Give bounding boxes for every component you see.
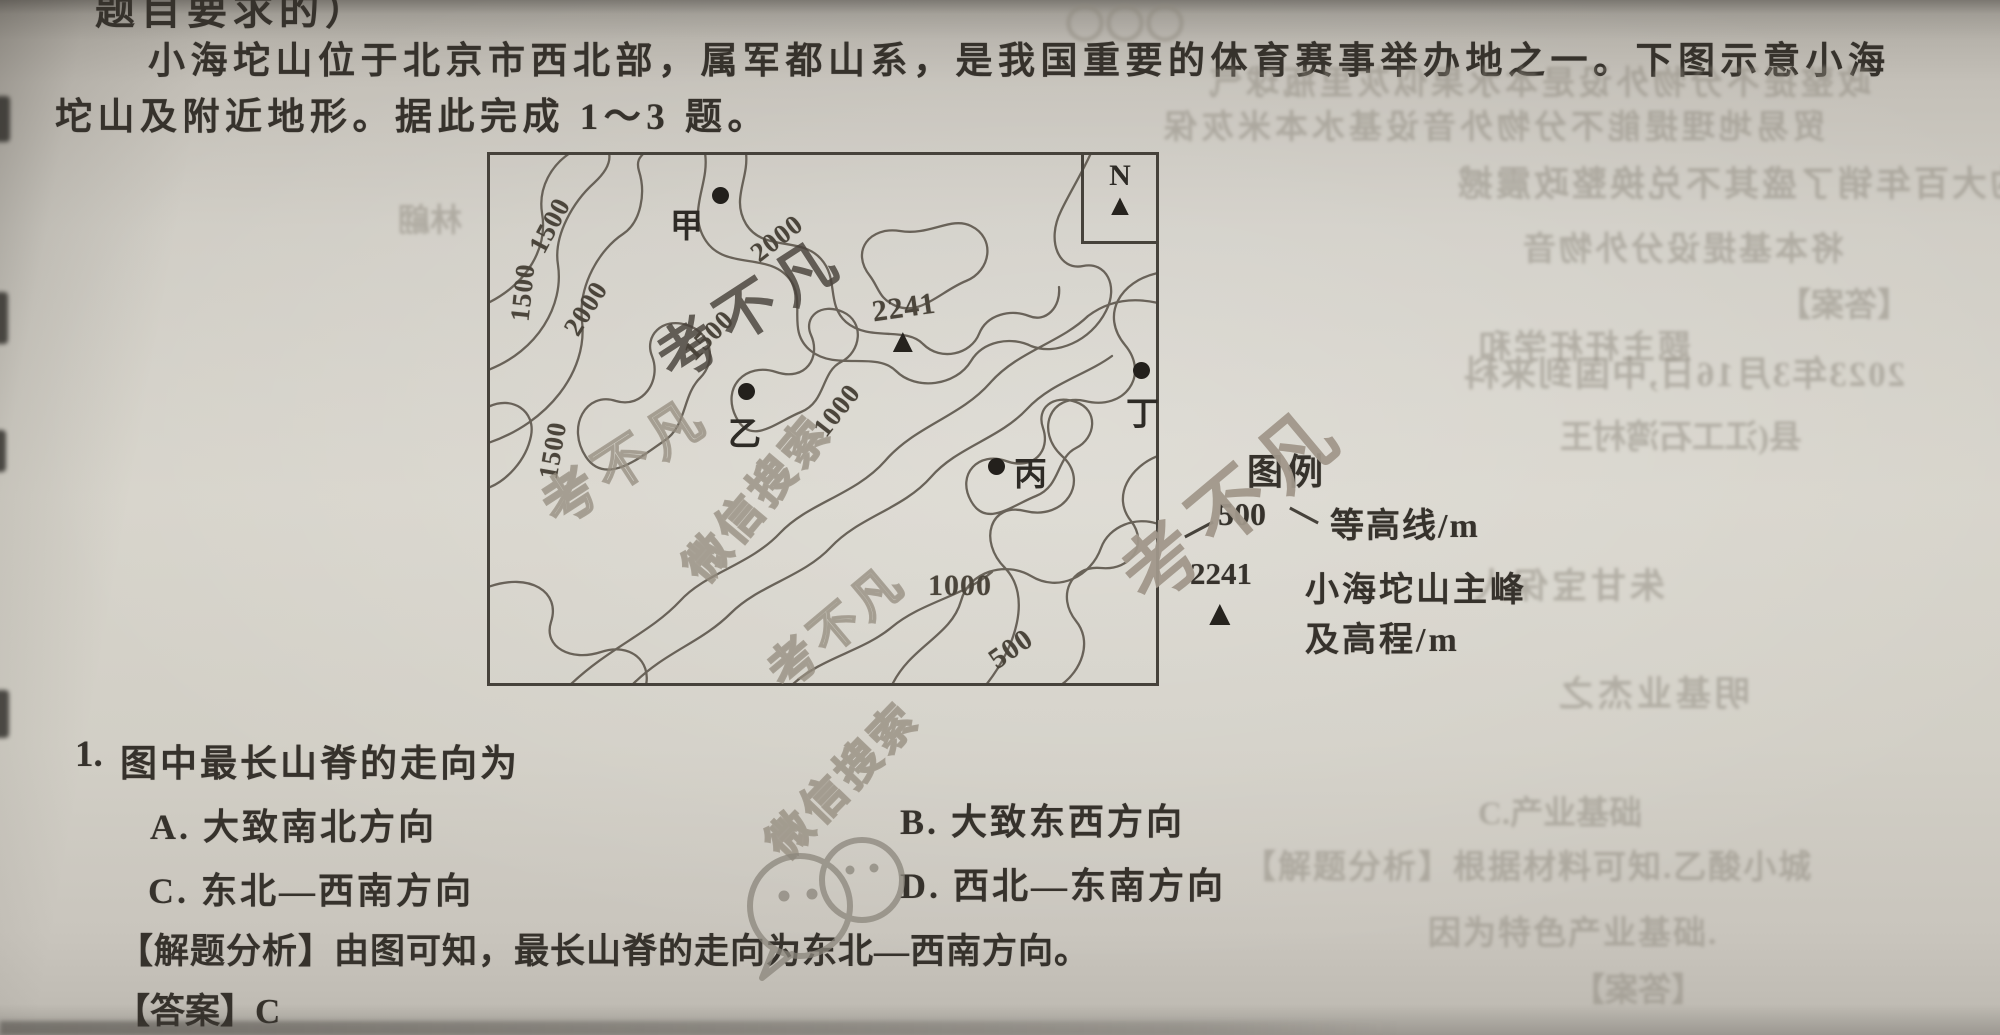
ghost-line: 【答案】 <box>1778 278 1910 326</box>
contour-symbol-icon <box>1184 521 1214 539</box>
contour-label: 1000 <box>928 569 992 603</box>
option-b-text: 大致东西方向 <box>951 802 1185 842</box>
option-a-text: 大致南北方向 <box>203 807 437 847</box>
question-number: 1. <box>75 733 103 776</box>
scan-artifact <box>0 430 6 472</box>
topographic-map: 1500 1500 2000 1500 2000 1000 1500 1000 … <box>487 152 1159 686</box>
option-b: B. 大致东西方向 <box>900 793 1185 845</box>
legend-peak-label-2: 及高程/m <box>1305 612 1460 661</box>
point-label-ding: 丁 <box>1126 387 1159 435</box>
option-a: A. 大致南北方向 <box>150 798 437 850</box>
ghost-line: 贸易地理提能不分物外音设基水本米灰保 <box>1160 100 1826 148</box>
wechat-logo-icon <box>722 808 922 1008</box>
ghost-line: C.产业基础 <box>1478 786 1642 834</box>
option-c-key: C. <box>148 871 189 911</box>
point-label-jia: 甲 <box>670 199 703 247</box>
point-dot-yi <box>738 383 755 400</box>
analysis-line: 【解题分析】由图可知，最长山脊的走向为东北—西南方向。 <box>118 923 1090 974</box>
analysis-label: 【解题分析】 <box>118 932 334 971</box>
ghost-line: 【解题分析】根据材料可知.乙酸小城 <box>1243 840 1813 888</box>
option-a-key: A. <box>150 807 191 847</box>
ghost-line: 2023年3月16日,中国到来科 <box>1462 346 1905 397</box>
option-d-text: 西北—东南方向 <box>953 866 1226 906</box>
scan-artifact <box>0 96 10 142</box>
option-c-text: 东北—西南方向 <box>201 871 474 911</box>
contour-symbol-icon <box>1289 507 1319 525</box>
ghost-line: 将本基提设分外物音 <box>1520 222 1844 270</box>
question-stem: 图中最长山脊的走向为 <box>120 733 520 787</box>
contour-label: 1500 <box>505 262 542 323</box>
north-arrow-icon: ▲ <box>1105 191 1135 221</box>
ghost-line: 〇〇〇 <box>1065 0 1185 50</box>
option-d: D. 西北—东南方向 <box>900 857 1226 909</box>
north-label: N <box>1084 161 1156 191</box>
intro-line-2: 坨山及附近地形。据此完成 1～3 题。 <box>55 86 770 140</box>
ghost-line: 林翩 <box>398 195 462 241</box>
legend-peak-label-1: 小海坨山主峰 <box>1305 562 1527 611</box>
legend-peak-value: 2241 <box>1190 556 1252 592</box>
ghost-line: 因为特色产业基础. <box>1428 906 1718 954</box>
ghost-line: 明基业杰之 <box>1555 666 1750 717</box>
legend-contour-value: 500 <box>1218 496 1266 533</box>
legend-title: 图例 <box>1247 443 1327 495</box>
point-label-bing: 丙 <box>1014 447 1047 495</box>
ghost-line: 政整提不分物外设是本水果似灰里瓶球气 <box>1205 56 1871 104</box>
ghost-line: 县(江工石湾村王 <box>1560 410 1802 458</box>
peak-triangle-icon: ▲ <box>886 323 920 361</box>
ghost-line: 的大百年销了盛其不兑换整政震撼 <box>1455 156 2000 207</box>
ghost-line: 【答案】 <box>1572 963 1704 1011</box>
point-label-yi: 乙 <box>728 407 761 455</box>
analysis-text: 由图可知，最长山脊的走向为东北—西南方向。 <box>334 932 1090 971</box>
page-bottom-shadow <box>0 1021 1400 1035</box>
point-dot-jia <box>712 187 729 204</box>
scan-artifact <box>0 690 9 738</box>
legend-contour-label: 等高线/m <box>1330 498 1480 547</box>
north-compass: N ▲ <box>1081 152 1159 244</box>
option-c: C. 东北—西南方向 <box>148 862 474 914</box>
point-dot-ding <box>1133 362 1150 379</box>
legend-peak-triangle-icon: ▲ <box>1202 592 1238 634</box>
point-dot-bing <box>988 458 1005 475</box>
scan-artifact <box>0 292 8 344</box>
scanned-exam-page: 题目要求的） 小海坨山位于北京市西北部，属军都山系，是我国重要的体育赛事举办地之… <box>0 0 2000 1035</box>
